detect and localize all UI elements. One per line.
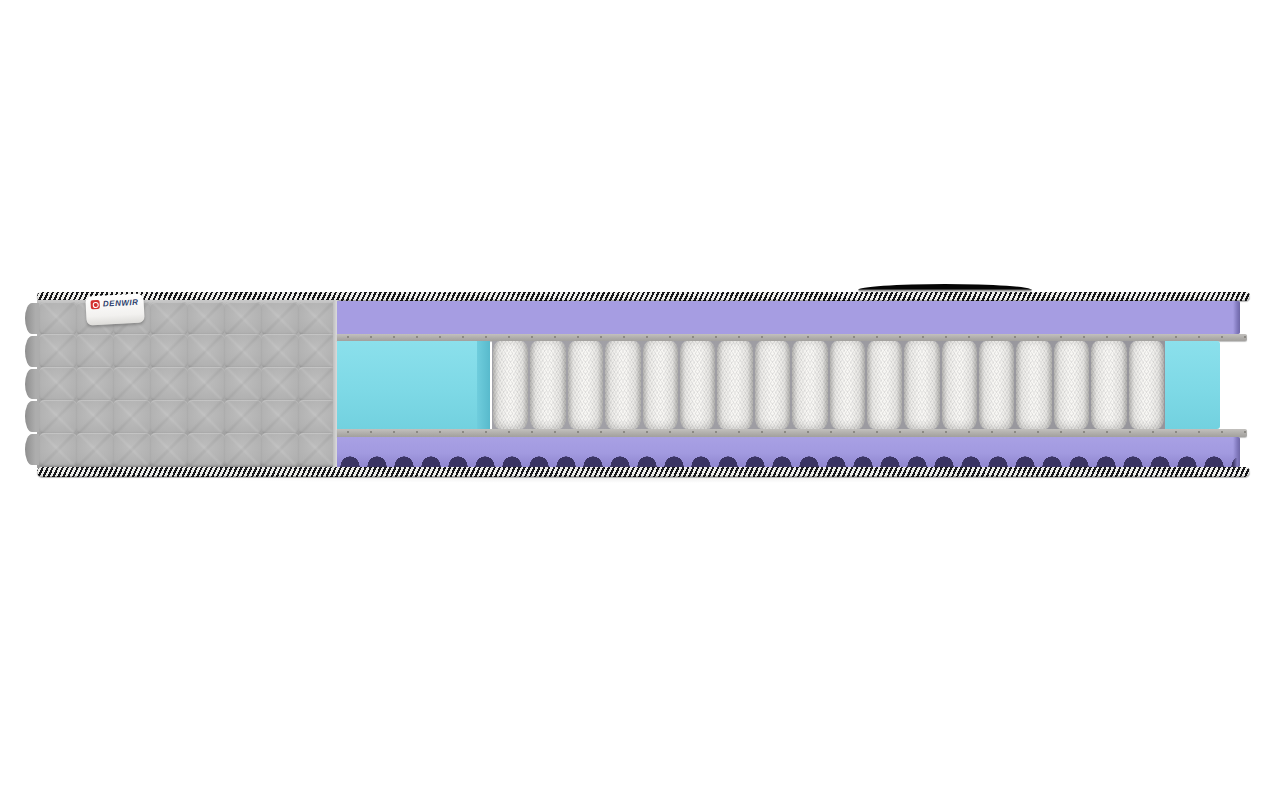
quilt-cell [76, 334, 114, 368]
pocket-spring [1129, 341, 1164, 429]
quilt-cell [261, 302, 299, 336]
pocket-spring [1091, 341, 1126, 429]
quilt-cell [298, 334, 336, 368]
quilt-cell [150, 433, 188, 467]
quilt-cell [298, 433, 336, 467]
quilt-cell [187, 433, 225, 467]
quilt-cell [39, 334, 77, 368]
quilt-cell [187, 367, 225, 401]
quilt-cell [261, 334, 299, 368]
quilt-cell [150, 334, 188, 368]
pocket-spring [755, 341, 790, 429]
pocket-spring [643, 341, 678, 429]
felt-pad-top [337, 334, 1247, 341]
felt-pad-bottom [337, 429, 1247, 437]
product-image: DENWIR [0, 0, 1280, 800]
comfort-foam-bottom-layer [337, 437, 1240, 467]
quilt-cell [39, 400, 77, 434]
quilt-cell [224, 334, 262, 368]
cover-scallop [25, 369, 39, 400]
quilt-cell [76, 367, 114, 401]
pocket-spring [680, 341, 715, 429]
spring-core [337, 341, 1240, 429]
spring-row [492, 341, 1165, 429]
quilt-cell [150, 367, 188, 401]
quilt-cell [39, 433, 77, 467]
pocket-spring [830, 341, 865, 429]
pocket-spring [867, 341, 902, 429]
quilt-cell [187, 400, 225, 434]
brand-logo-icon [91, 300, 100, 309]
quilt-cell [113, 433, 151, 467]
quilt-cell [224, 302, 262, 336]
quilt-cell [298, 302, 336, 336]
brand-tag: DENWIR [85, 294, 144, 326]
pocket-spring [530, 341, 565, 429]
binding-tape-bottom [37, 467, 1250, 477]
pocket-spring [493, 341, 528, 429]
quilt-cell [76, 400, 114, 434]
quilt-cell [187, 302, 225, 336]
quilt-grid [39, 302, 335, 466]
comfort-foam-top-layer [337, 301, 1240, 334]
quilt-cell [261, 367, 299, 401]
quilt-cell [113, 367, 151, 401]
pocket-spring [792, 341, 827, 429]
cover-scallop [25, 336, 39, 367]
pocket-spring [717, 341, 752, 429]
quilt-cell [150, 302, 188, 336]
quilt-cell [113, 400, 151, 434]
quilt-cell [113, 334, 151, 368]
quilt-cell [224, 367, 262, 401]
quilt-cell [187, 334, 225, 368]
pocket-spring [904, 341, 939, 429]
quilt-cell [261, 433, 299, 467]
side-support-foam-left [337, 341, 490, 429]
pocket-spring [1016, 341, 1051, 429]
cover-scallop [25, 303, 39, 334]
quilted-cover [37, 300, 337, 468]
cover-scallop [25, 401, 39, 432]
pocket-spring [1054, 341, 1089, 429]
quilt-cell [224, 433, 262, 467]
pocket-spring [942, 341, 977, 429]
pocket-spring [979, 341, 1014, 429]
quilt-cell [150, 400, 188, 434]
quilt-cell [39, 302, 77, 336]
foam-top-side-face [1233, 301, 1240, 334]
quilt-cell [298, 400, 336, 434]
foam-bottom-side-face [1233, 437, 1240, 467]
brand-tag-text: DENWIR [103, 298, 139, 309]
pocket-spring [605, 341, 640, 429]
side-support-foam-right [1165, 341, 1220, 429]
quilt-cell [76, 433, 114, 467]
quilt-cell [224, 400, 262, 434]
quilt-cell [261, 400, 299, 434]
quilt-cell [298, 367, 336, 401]
quilt-cell [39, 367, 77, 401]
cover-scallop [25, 434, 39, 465]
scallop-strip [25, 302, 39, 466]
pocket-spring [568, 341, 603, 429]
